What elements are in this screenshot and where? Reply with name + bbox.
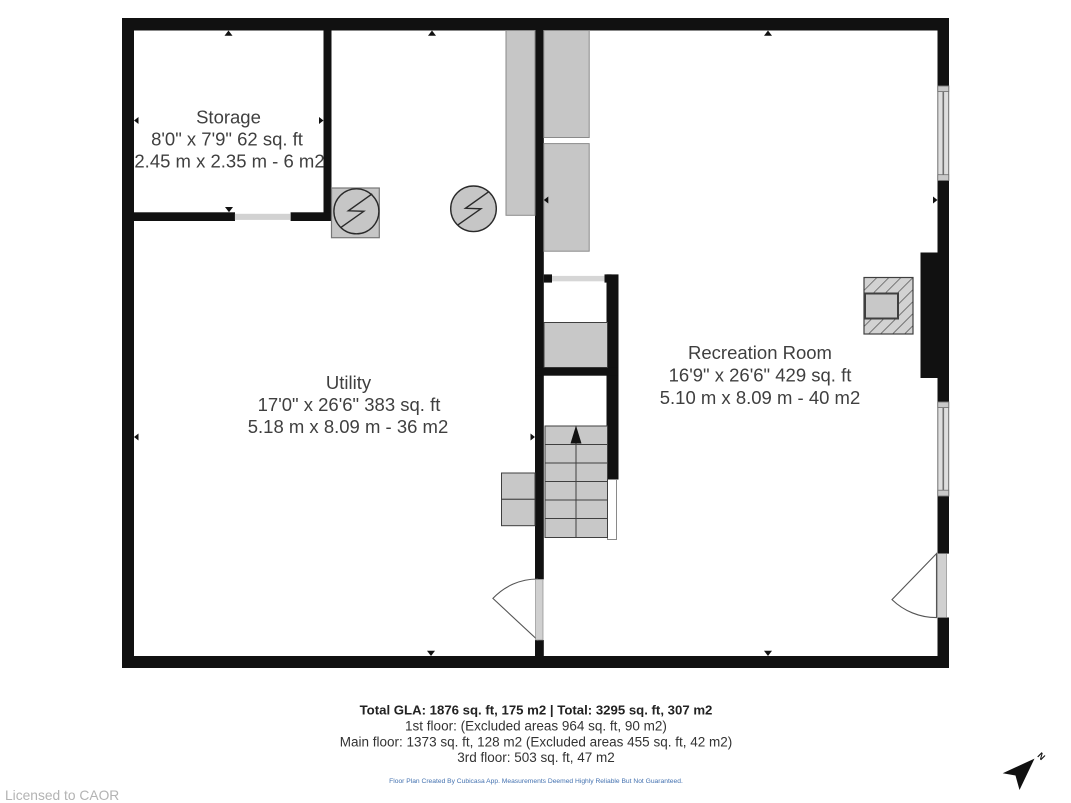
svg-text:5.18 m x 8.09 m - 36 m2: 5.18 m x 8.09 m - 36 m2 — [248, 416, 449, 437]
svg-text:17'0" x 26'6" 383 sq. ft: 17'0" x 26'6" 383 sq. ft — [258, 394, 441, 415]
svg-text:Storage: Storage — [196, 107, 261, 128]
svg-text:1st floor: (Excluded areas 964: 1st floor: (Excluded areas 964 sq. ft, 9… — [405, 719, 667, 734]
svg-text:8'0" x 7'9" 62 sq. ft: 8'0" x 7'9" 62 sq. ft — [151, 129, 303, 150]
svg-text:Recreation Room: Recreation Room — [688, 342, 832, 363]
svg-text:Licensed to CAOR: Licensed to CAOR — [5, 788, 119, 803]
svg-text:Utility: Utility — [326, 372, 372, 393]
svg-text:3rd floor: 503 sq. ft, 47 m2: 3rd floor: 503 sq. ft, 47 m2 — [457, 750, 615, 765]
svg-text:5.10 m x 8.09 m - 40 m2: 5.10 m x 8.09 m - 40 m2 — [660, 387, 861, 408]
svg-text:16'9" x 26'6" 429 sq. ft: 16'9" x 26'6" 429 sq. ft — [669, 365, 852, 386]
svg-text:Total GLA: 1876 sq. ft, 175 m2: Total GLA: 1876 sq. ft, 175 m2 | Total: … — [360, 703, 713, 718]
svg-text:2.45 m x 2.35 m - 6 m2: 2.45 m x 2.35 m - 6 m2 — [134, 151, 324, 172]
svg-text:Floor Plan Created By Cubicasa: Floor Plan Created By Cubicasa App. Meas… — [389, 778, 683, 785]
svg-text:Main floor: 1373 sq. ft, 128 m: Main floor: 1373 sq. ft, 128 m2 (Exclude… — [340, 734, 732, 749]
